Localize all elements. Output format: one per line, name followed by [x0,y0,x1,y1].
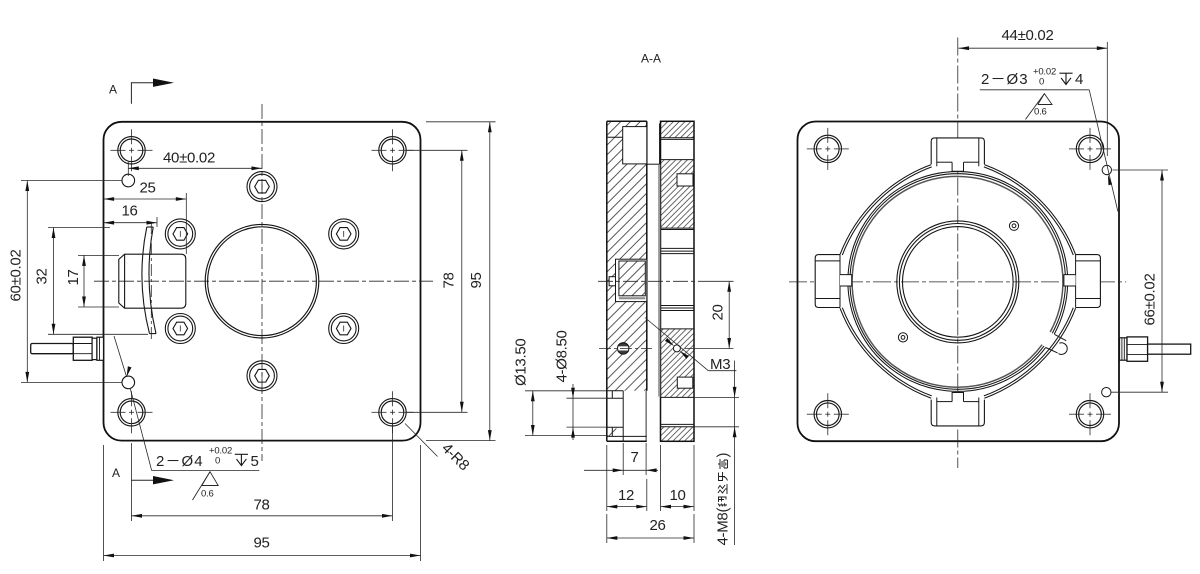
svg-text:26: 26 [650,517,666,534]
svg-text:5: 5 [251,453,259,470]
svg-text:32: 32 [34,268,51,284]
svg-text:): ) [715,453,732,458]
svg-text:25: 25 [140,180,156,197]
svg-text:2－Ø4: 2－Ø4 [156,453,204,470]
svg-text:Ø13.50: Ø13.50 [513,339,530,386]
svg-text:0.6: 0.6 [1034,107,1047,118]
svg-text:78: 78 [441,272,458,288]
svg-text:A: A [112,466,120,480]
svg-text:66±0.02: 66±0.02 [1142,273,1159,325]
svg-text:60±0.02: 60±0.02 [8,249,25,301]
svg-text:20: 20 [710,304,727,320]
svg-text:A-A: A-A [641,52,661,66]
svg-text:0.6: 0.6 [201,489,214,500]
svg-text:17: 17 [65,269,82,285]
svg-text:16: 16 [122,203,138,220]
svg-text:12: 12 [618,487,634,504]
svg-text:95: 95 [254,535,270,552]
svg-text:40±0.02: 40±0.02 [163,150,215,167]
svg-text:95: 95 [468,272,485,288]
svg-text:4: 4 [1075,71,1083,88]
svg-text:A: A [109,83,117,97]
svg-text:4-M8(: 4-M8( [715,508,732,546]
svg-text:4-Ø8.50: 4-Ø8.50 [554,330,571,382]
svg-text:78: 78 [254,497,270,514]
svg-text:2－Ø3: 2－Ø3 [981,71,1029,88]
svg-text:+0.02: +0.02 [1033,67,1056,78]
svg-text:0: 0 [215,456,220,467]
svg-text:M3: M3 [710,356,730,373]
svg-text:+0.02: +0.02 [209,446,232,457]
svg-text:7: 7 [631,449,639,466]
svg-text:10: 10 [670,487,686,504]
svg-text:0: 0 [1039,77,1044,88]
svg-text:44±0.02: 44±0.02 [1002,27,1054,44]
